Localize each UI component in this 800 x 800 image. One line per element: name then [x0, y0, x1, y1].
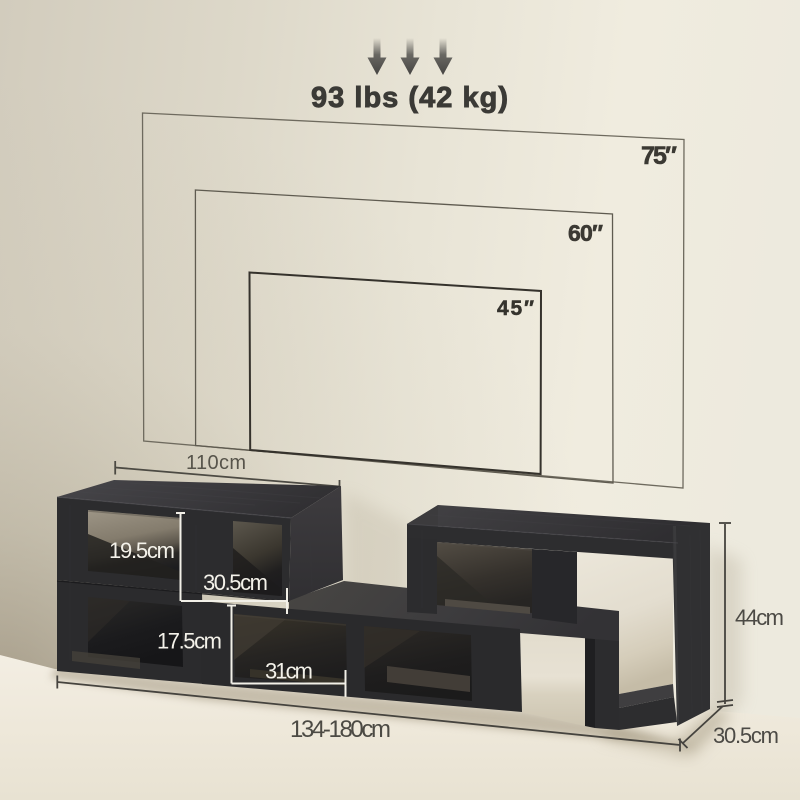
- svg-text:110cm: 110cm: [186, 452, 246, 474]
- svg-text:45″: 45″: [497, 297, 534, 320]
- svg-text:19.5cm: 19.5cm: [109, 538, 175, 563]
- svg-text:31cm: 31cm: [265, 659, 313, 684]
- svg-text:30.5cm: 30.5cm: [203, 570, 268, 595]
- svg-text:17.5cm: 17.5cm: [157, 629, 222, 654]
- svg-text:60″: 60″: [568, 220, 603, 246]
- svg-text:75″: 75″: [641, 142, 677, 170]
- svg-text:134-180cm: 134-180cm: [290, 716, 391, 743]
- svg-text:44cm: 44cm: [735, 605, 784, 630]
- svg-text:30.5cm: 30.5cm: [713, 723, 779, 748]
- svg-text:93 lbs (42 kg): 93 lbs (42 kg): [311, 82, 508, 114]
